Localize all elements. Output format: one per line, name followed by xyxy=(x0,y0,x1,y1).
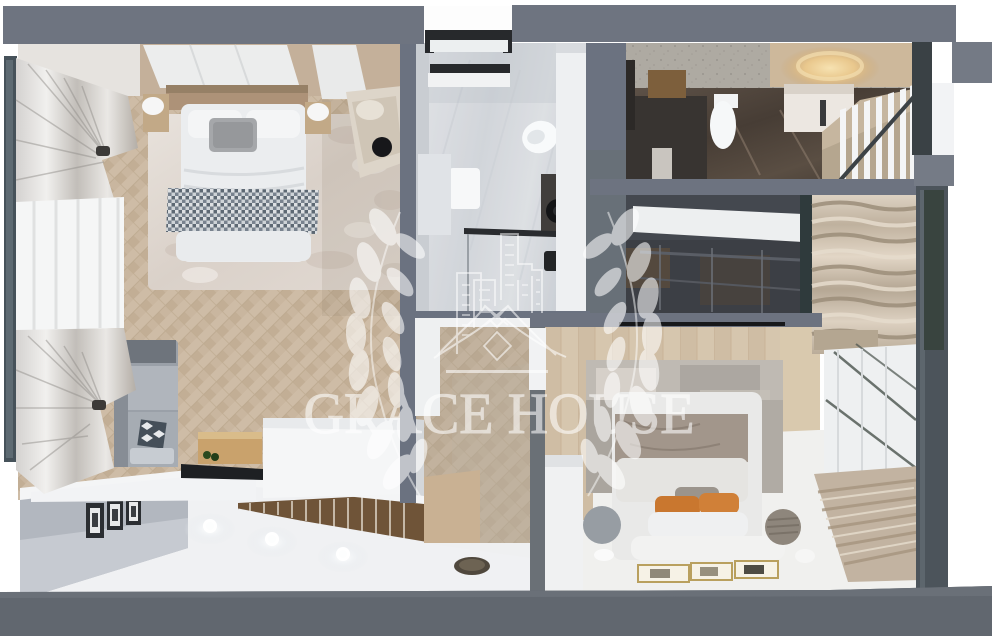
svg-text:GRACE HOUSE: GRACE HOUSE xyxy=(304,381,695,446)
